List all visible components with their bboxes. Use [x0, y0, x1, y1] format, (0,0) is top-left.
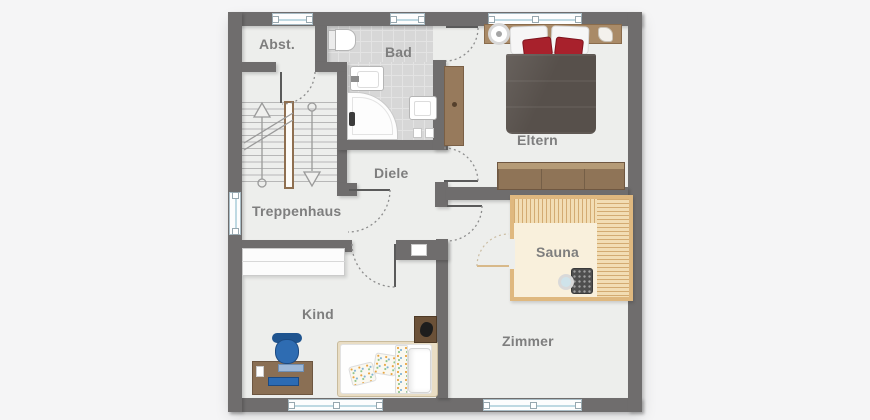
- room-label-abst: Abst.: [259, 36, 295, 52]
- door-swing-overlay: [0, 0, 870, 420]
- room-label-bad: Bad: [385, 44, 412, 60]
- room-label-diele: Diele: [374, 165, 408, 181]
- stair-direction-marks: [244, 103, 320, 187]
- room-label-treppenhaus: Treppenhaus: [252, 203, 341, 219]
- room-label-sauna: Sauna: [536, 244, 579, 260]
- door-leaves: [281, 27, 482, 287]
- floor-plan: Abst. Bad Eltern Diele Treppenhaus Sauna…: [0, 0, 870, 420]
- room-label-kind: Kind: [302, 306, 334, 322]
- sauna-door: [477, 234, 509, 266]
- room-label-eltern: Eltern: [517, 132, 558, 148]
- room-label-zimmer: Zimmer: [502, 333, 554, 349]
